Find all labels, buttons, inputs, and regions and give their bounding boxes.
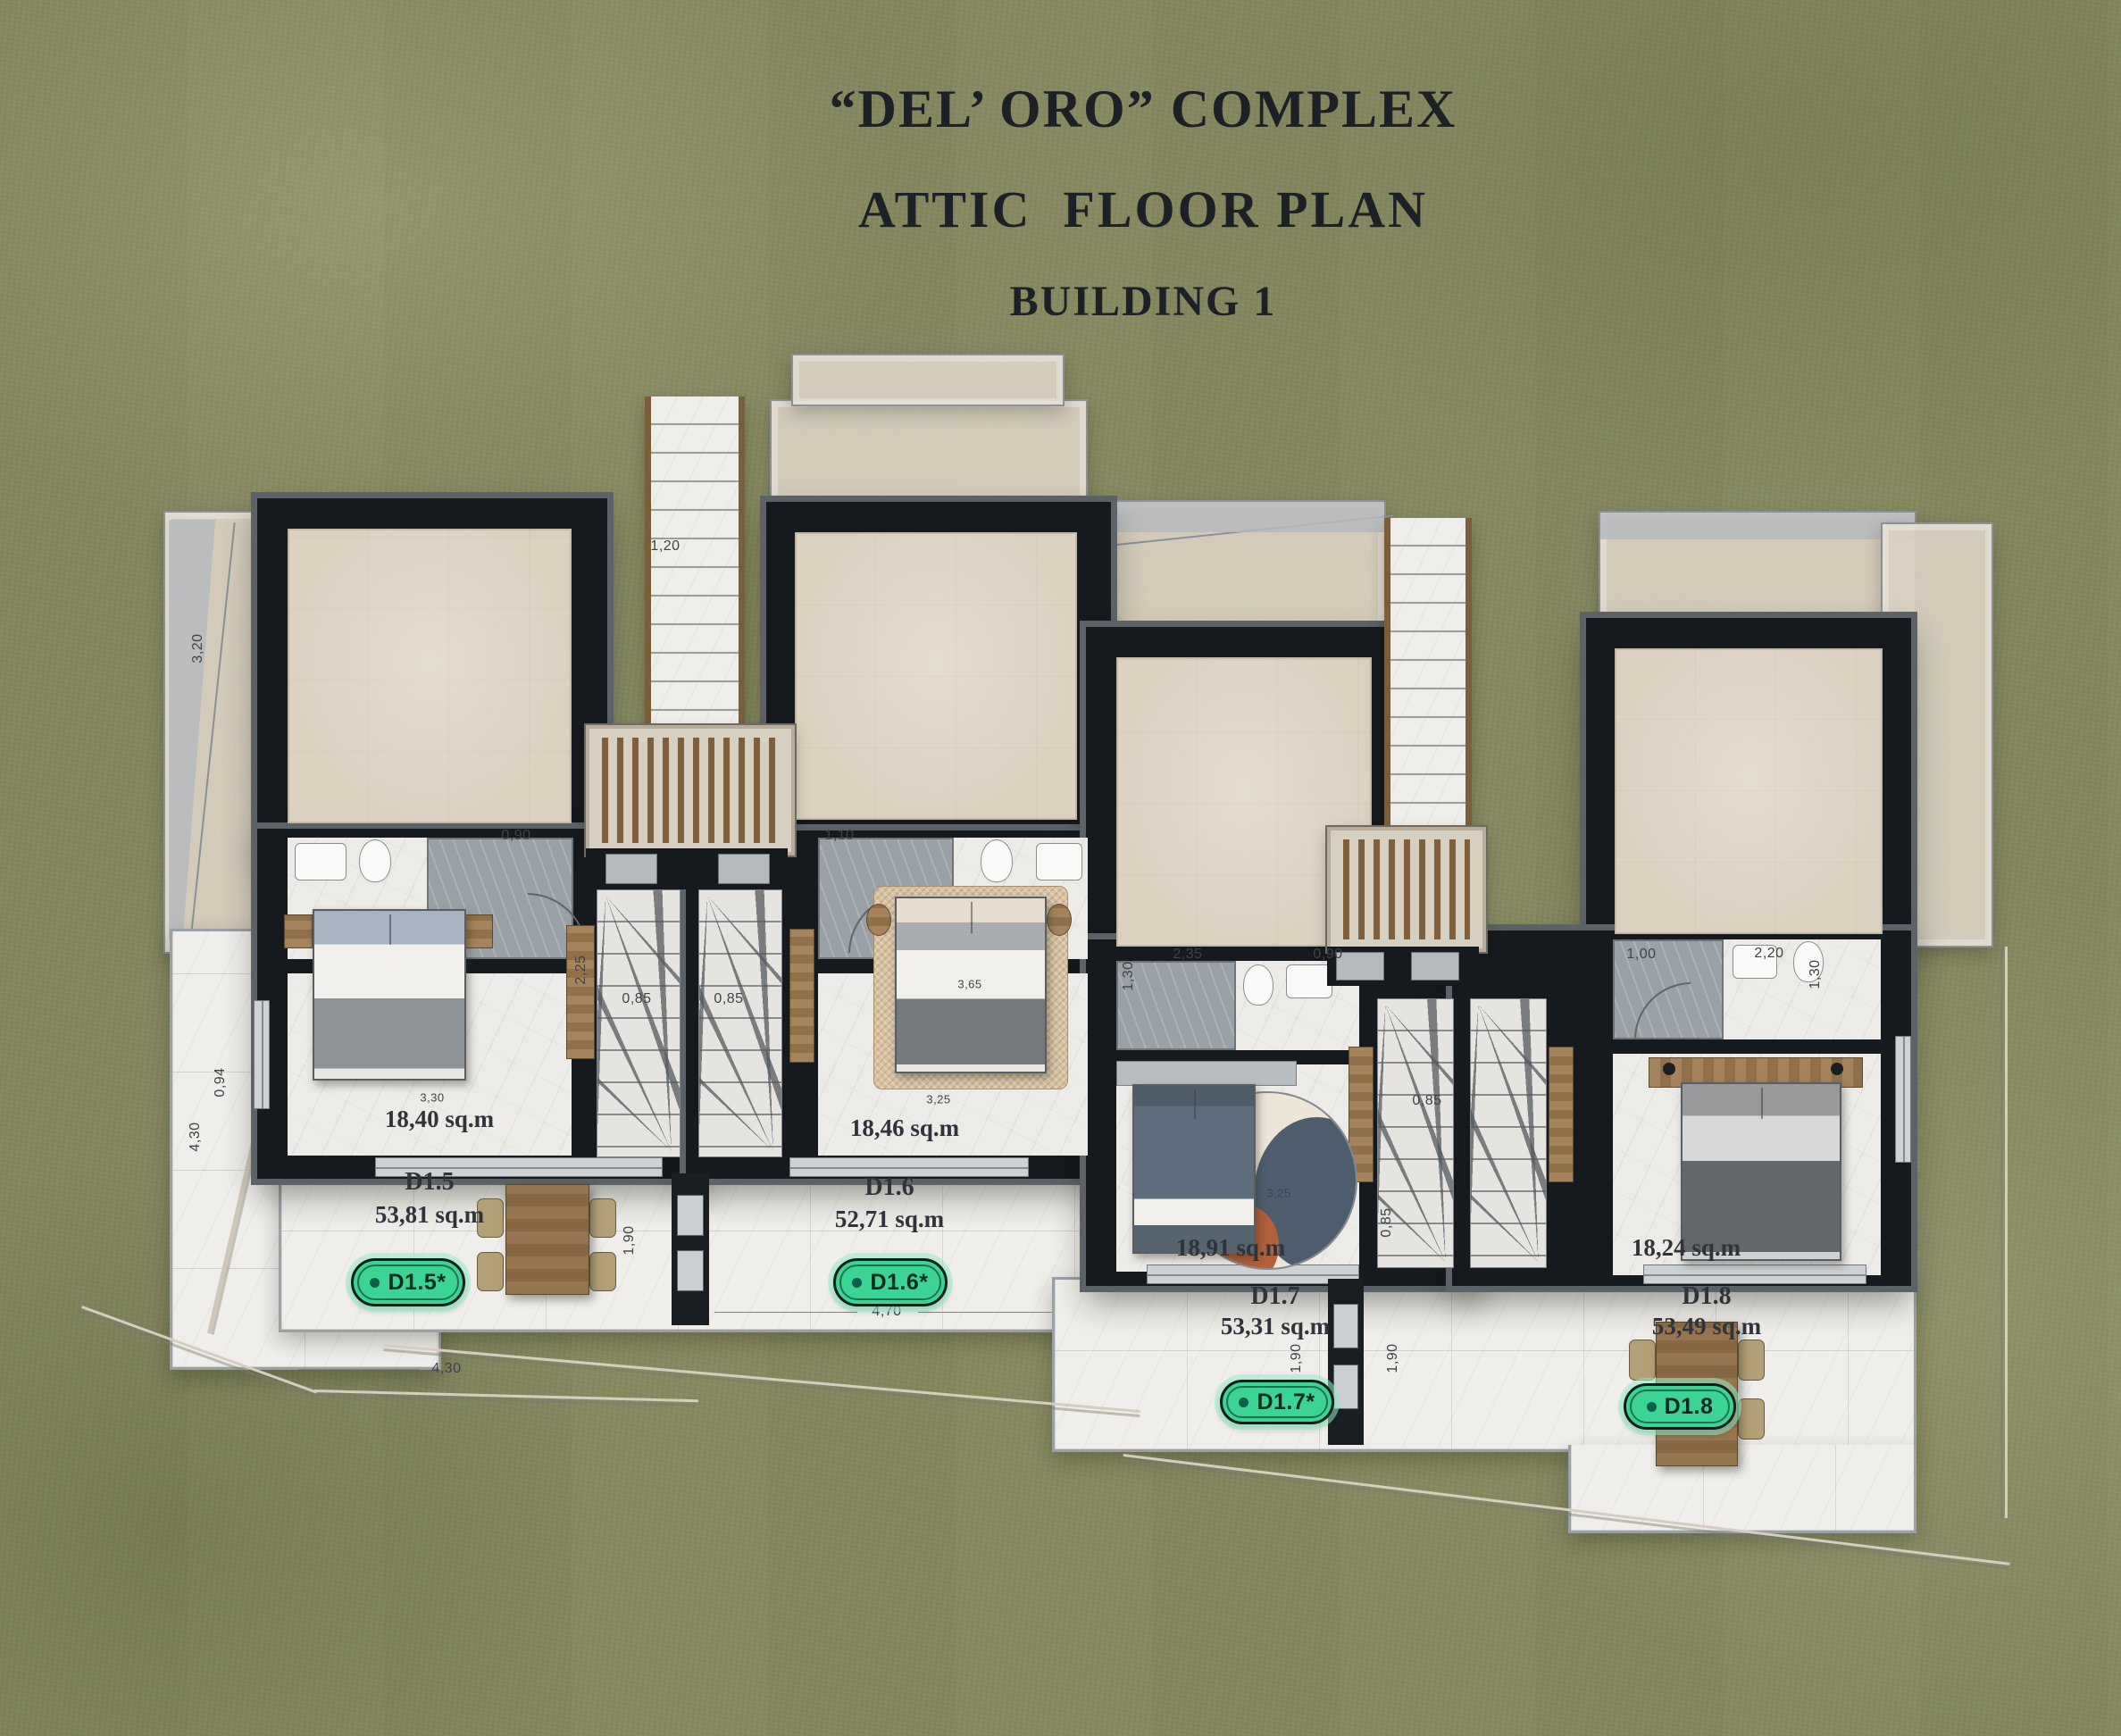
pergola-west-slats <box>602 738 779 843</box>
plan-title: “DEL’ ORO” COMPLEX ATTIC FLOOR PLAN BUIL… <box>830 46 1457 358</box>
dimension-label: 4,30 <box>431 1361 461 1377</box>
roof-slab-above-d16-upper <box>791 354 1065 406</box>
d17-room-area-label: 18,91 sq.m <box>1176 1234 1285 1262</box>
d17-bed <box>1132 1084 1256 1254</box>
d16-unit-badge[interactable]: D1.6* <box>833 1258 948 1306</box>
d16-total-area-label: 52,71 sq.m <box>835 1206 944 1233</box>
d15-total-area-label: 53,81 sq.m <box>375 1201 484 1229</box>
dimension-label: 2,35 <box>1173 947 1202 963</box>
d18-side-window <box>1895 1036 1911 1163</box>
d17-sink <box>1286 964 1332 998</box>
dimension-label: 2,20 <box>1754 946 1783 962</box>
badge-dot-icon <box>852 1278 862 1288</box>
d17-unit-badge[interactable]: D1.7* <box>1220 1380 1334 1424</box>
dimension-label: 1,90 <box>622 1225 638 1255</box>
railing-line-southwest2 <box>314 1390 698 1402</box>
dimension-label: 3,30 <box>420 1091 444 1105</box>
d18-room-area-label: 18,24 sq.m <box>1632 1234 1741 1262</box>
dimension-label: 1,10 <box>824 828 854 844</box>
dimension-line <box>714 1312 857 1313</box>
d18-lamp-left <box>1663 1063 1675 1075</box>
dining-chair <box>589 1198 616 1238</box>
badge-dot-icon <box>1239 1398 1248 1407</box>
d15-entry-door <box>605 854 657 884</box>
d15-unit-badge[interactable]: D1.5* <box>351 1258 465 1306</box>
dimension-label: 1,30 <box>1808 959 1824 989</box>
d18-unit-id-label: D1.8 <box>1682 1282 1731 1311</box>
d16-internal-stair <box>698 889 782 1157</box>
d17-toilet <box>1243 964 1273 1006</box>
d15-side-window <box>254 1000 270 1109</box>
dimension-label: 0,85 <box>622 991 651 1007</box>
d16-room-area-label: 18,46 sq.m <box>850 1114 959 1142</box>
d15-room-area-label: 18,40 sq.m <box>385 1106 494 1133</box>
d18-closet <box>1549 1047 1574 1182</box>
plan-title-line3: BUILDING 1 <box>830 277 1457 326</box>
d16-nightstand-right <box>1047 904 1072 936</box>
divider-window <box>1333 1304 1358 1348</box>
d15-nightstand-right <box>464 914 493 948</box>
roof-glass-strip <box>1076 502 1384 532</box>
dimension-line <box>475 1369 593 1370</box>
d17-wall-shelf <box>1116 1061 1297 1086</box>
dimension-label: 4,30 <box>188 1122 204 1151</box>
roof-slab-angled <box>1074 500 1386 638</box>
d18-attic-room-floor <box>1615 648 1883 934</box>
d15-bed <box>313 909 466 1081</box>
d16-attic-room-floor <box>795 532 1077 820</box>
railing-line-east <box>2005 947 2008 1518</box>
dimension-label: 3,65 <box>957 978 981 991</box>
badge-dot-icon <box>370 1278 380 1288</box>
d15-attic-room-floor <box>288 529 572 823</box>
dimension-label: 3,20 <box>190 633 206 663</box>
d16-closet <box>789 929 814 1063</box>
divider-window <box>677 1250 704 1291</box>
d16-entry-door <box>718 854 770 884</box>
d16-badge-label: D1.6* <box>870 1270 928 1296</box>
d15-dining-table <box>505 1184 589 1295</box>
terrace-d17-d18 <box>1052 1277 1916 1452</box>
d16-unit-id-label: D1.6 <box>864 1173 914 1202</box>
plan-title-line1: “DEL’ ORO” COMPLEX <box>830 79 1457 140</box>
roof-slab-above-d18 <box>1599 511 1916 635</box>
d15-badge-label: D1.5* <box>388 1270 446 1296</box>
dimension-line <box>298 1369 420 1370</box>
d18-entry-door <box>1411 952 1459 981</box>
dining-chair <box>589 1252 616 1291</box>
d17-total-area-label: 53,31 sq.m <box>1221 1313 1330 1340</box>
plan-title-line2: ATTIC FLOOR PLAN <box>830 179 1457 239</box>
d18-terrace-door <box>1643 1264 1866 1284</box>
d15-nightstand-left <box>284 914 313 948</box>
d17-entry-door <box>1336 952 1384 981</box>
d15-sink <box>295 843 347 881</box>
dining-chair <box>1738 1340 1765 1381</box>
dimension-label: 0,85 <box>714 991 743 1007</box>
dimension-label: 1,90 <box>1385 1343 1401 1373</box>
roof-glass-strip-d18 <box>1600 513 1915 539</box>
pergola-west <box>586 725 795 855</box>
d18-lamp-right <box>1831 1063 1843 1075</box>
terrace-d18-extension <box>1568 1445 1916 1533</box>
d16-nightstand-left <box>866 904 891 936</box>
divider-window <box>1333 1365 1358 1409</box>
dining-chair <box>1629 1340 1656 1381</box>
d16-toilet <box>981 839 1013 882</box>
dining-chair <box>477 1252 504 1291</box>
dining-chair <box>1738 1398 1765 1440</box>
d15-internal-stair <box>597 889 681 1157</box>
left-balcony-glass <box>169 520 215 939</box>
dimension-label: 1,20 <box>650 538 680 555</box>
dimension-label: 1,30 <box>1121 961 1137 990</box>
dimension-line <box>918 1312 1052 1313</box>
external-staircase-east <box>1384 518 1472 832</box>
roof-slab-above-d16 <box>770 399 1088 519</box>
dimension-label: 2,25 <box>573 955 589 984</box>
dimension-label: 0,94 <box>213 1067 229 1097</box>
terrace-divider-west <box>672 1173 709 1325</box>
d15-unit-id-label: D1.5 <box>405 1168 454 1197</box>
dimension-label: 0,90 <box>501 828 530 844</box>
pergola-east-slats <box>1343 839 1470 939</box>
d17-unit-id-label: D1.7 <box>1250 1282 1299 1311</box>
d18-badge-label: D1.8 <box>1665 1394 1714 1420</box>
dimension-label: 0,85 <box>1412 1093 1441 1109</box>
dimension-label: 0,90 <box>1313 947 1342 963</box>
d15-closet <box>566 925 595 1059</box>
d17-badge-label: D1.7* <box>1257 1390 1315 1415</box>
badge-dot-icon <box>1647 1402 1657 1412</box>
d16-sink <box>1036 843 1082 881</box>
divider-window <box>677 1195 704 1236</box>
walkway-line-south <box>384 1344 1140 1413</box>
d18-unit-badge[interactable]: D1.8 <box>1624 1383 1736 1430</box>
dimension-label: 1,00 <box>1626 947 1656 963</box>
d18-total-area-label: 53,49 sq.m <box>1652 1313 1761 1340</box>
dimension-label: 0,85 <box>1379 1207 1395 1237</box>
dimension-label: 3,25 <box>1266 1187 1290 1200</box>
d18-internal-stair <box>1470 998 1547 1268</box>
d15-toilet <box>359 839 391 882</box>
attic-floor-plan: “DEL’ ORO” COMPLEX ATTIC FLOOR PLAN BUIL… <box>0 0 2121 1736</box>
terrace-divider-east <box>1328 1279 1364 1445</box>
pergola-east <box>1327 827 1486 952</box>
dimension-label: 1,90 <box>1289 1343 1305 1373</box>
dimension-label: 3,25 <box>926 1093 950 1106</box>
